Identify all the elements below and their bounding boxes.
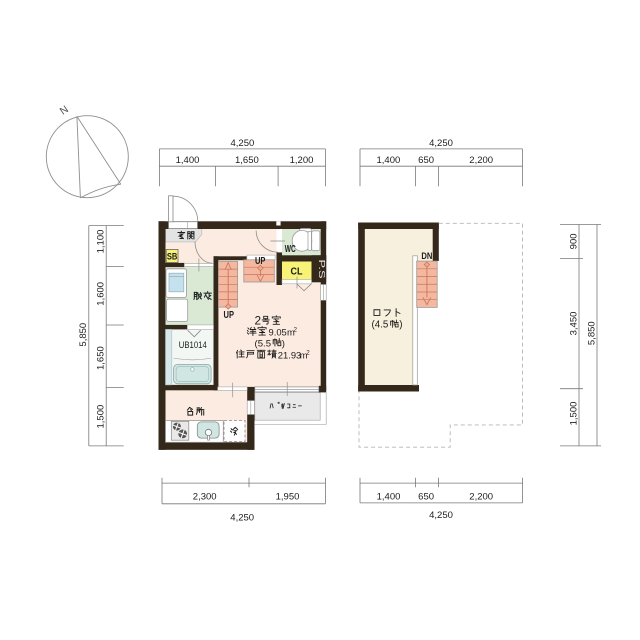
svg-text:1,500: 1,500 [95,405,106,429]
svg-text:1,600: 1,600 [95,282,106,306]
svg-text:(4.5: (4.5 [372,319,389,330]
svg-text:1,100: 1,100 [95,230,106,254]
svg-text:3,450: 3,450 [568,312,579,336]
svg-text:5,850: 5,850 [586,321,597,345]
svg-text:4,250: 4,250 [230,512,254,523]
svg-text:1,650: 1,650 [95,346,106,370]
svg-text:P.S: P.S [317,260,326,279]
svg-text:2,300: 2,300 [193,491,217,502]
svg-text:UB1014: UB1014 [179,340,207,350]
svg-text:2,200: 2,200 [469,155,493,166]
svg-text:): ) [282,338,285,349]
svg-text:): ) [399,319,402,330]
svg-text:1,400: 1,400 [176,155,200,166]
svg-text:2,200: 2,200 [469,491,493,502]
svg-text:UP: UP [255,256,266,267]
svg-text:5,850: 5,850 [78,323,89,347]
svg-text:650: 650 [418,491,434,502]
svg-text:WC: WC [285,244,296,255]
svg-text:CL: CL [291,265,303,277]
svg-text:4,250: 4,250 [231,138,255,149]
svg-text:1,200: 1,200 [290,155,314,166]
svg-text:UP: UP [224,310,235,321]
svg-text:2: 2 [255,314,262,328]
svg-text:DN: DN [421,251,432,261]
svg-text:650: 650 [418,155,434,166]
svg-text:1,650: 1,650 [235,155,259,166]
svg-text:21.93: 21.93 [278,349,301,360]
svg-text:1,950: 1,950 [276,491,300,502]
svg-text:1,500: 1,500 [568,402,579,426]
svg-text:1,400: 1,400 [377,491,401,502]
svg-text:4,250: 4,250 [429,138,453,149]
svg-text:9.05: 9.05 [269,326,287,337]
svg-text:(5.5: (5.5 [255,338,272,349]
svg-text:SB: SB [167,252,178,262]
svg-text:900: 900 [568,233,579,249]
svg-text:4,250: 4,250 [429,510,453,521]
svg-text:1,400: 1,400 [377,155,401,166]
